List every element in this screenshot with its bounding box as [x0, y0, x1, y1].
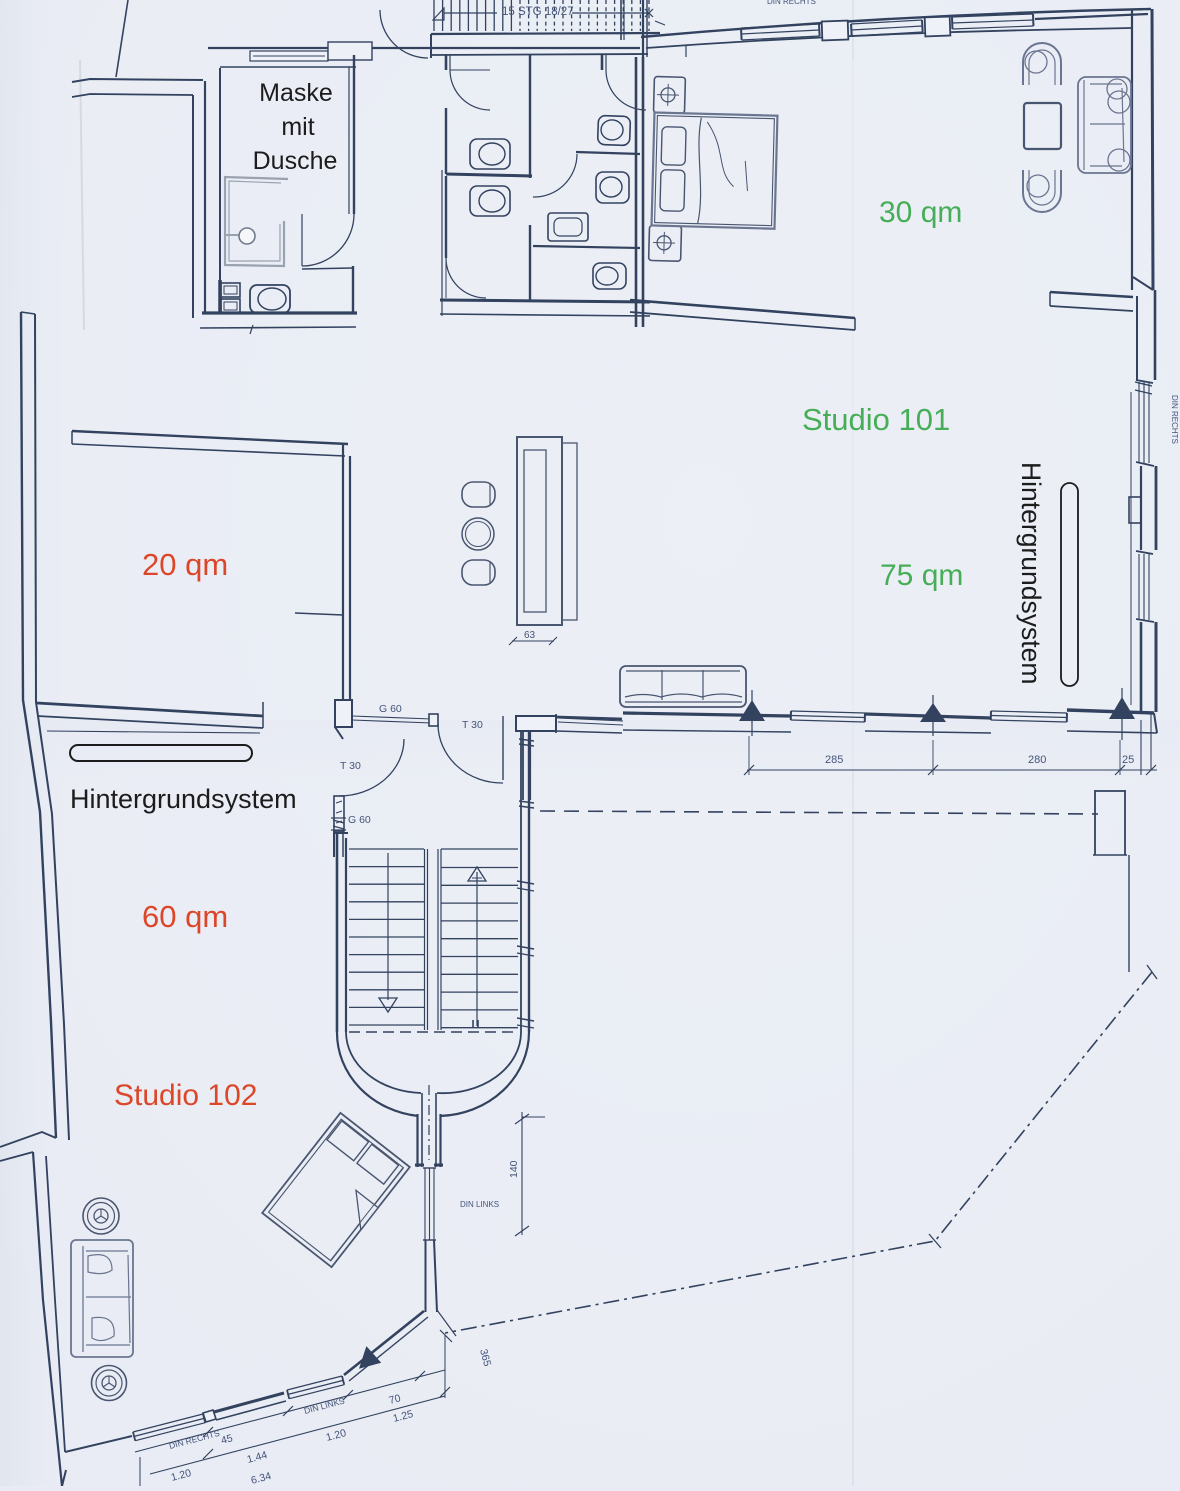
- svg-text:140: 140: [508, 1160, 520, 1178]
- svg-text:30 qm: 30 qm: [879, 196, 962, 229]
- svg-text:Hintergrundsystem: Hintergrundsystem: [1016, 462, 1046, 684]
- svg-text:Studio 102: Studio 102: [114, 1079, 257, 1112]
- svg-text:mit: mit: [281, 113, 314, 141]
- svg-text:T 30: T 30: [462, 719, 483, 731]
- svg-text:G 60: G 60: [348, 814, 371, 826]
- svg-text:T 30: T 30: [340, 760, 361, 772]
- svg-text:63: 63: [524, 630, 536, 641]
- svg-text:60 qm: 60 qm: [142, 899, 228, 934]
- svg-text:280: 280: [1028, 754, 1046, 766]
- svg-text:20 qm: 20 qm: [142, 547, 228, 582]
- svg-text:Dusche: Dusche: [253, 147, 338, 175]
- svg-text:DIN RECHTS: DIN RECHTS: [767, 0, 816, 6]
- svg-text:Studio 101: Studio 101: [802, 402, 950, 437]
- svg-text:285: 285: [825, 754, 843, 766]
- svg-text:Maske: Maske: [259, 79, 333, 107]
- svg-text:75 qm: 75 qm: [880, 559, 963, 592]
- svg-text:Hintergrundsystem: Hintergrundsystem: [70, 784, 297, 814]
- svg-text:DIN LINKS: DIN LINKS: [460, 1200, 499, 1209]
- svg-text:G 60: G 60: [379, 703, 402, 715]
- svg-text:15 STG 18/27: 15 STG 18/27: [502, 6, 574, 18]
- svg-text:DIN RECHTS: DIN RECHTS: [1170, 395, 1179, 444]
- svg-text:25: 25: [1122, 754, 1134, 766]
